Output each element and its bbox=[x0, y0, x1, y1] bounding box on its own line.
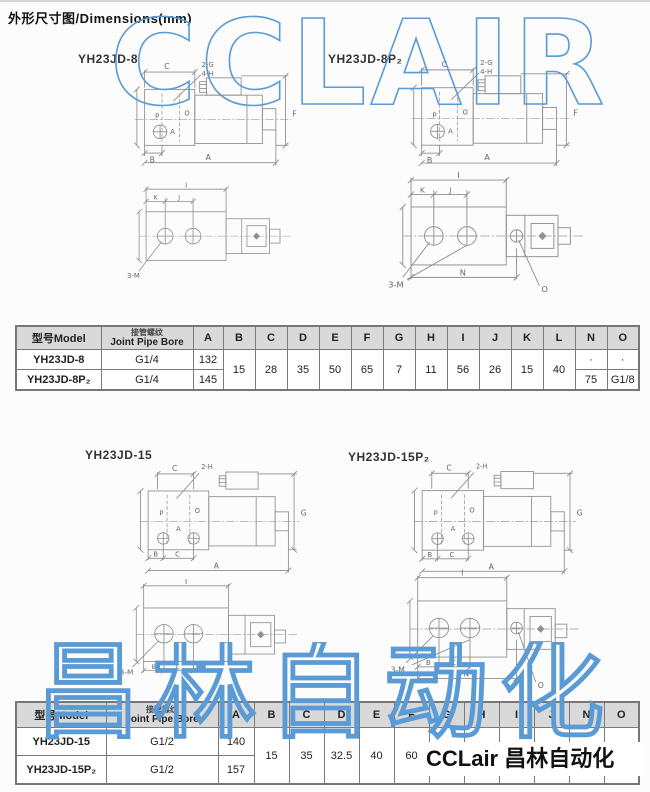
cell-bore: G1/4 bbox=[101, 350, 193, 370]
datasheet-page: 外形尺寸图/Dimensions(mm) YH23JD-8 YH23JD-8P₂… bbox=[0, 0, 650, 792]
dim-label-p: P bbox=[159, 510, 163, 518]
column-header: B bbox=[254, 702, 289, 728]
column-header-bore: 接管螺纹 Joint Pipe Bore bbox=[106, 702, 218, 728]
dim-label-2h: 2-H bbox=[476, 463, 488, 471]
dim-label-a: A bbox=[451, 525, 456, 533]
column-header: F bbox=[351, 326, 383, 350]
column-header: J bbox=[534, 702, 569, 728]
cell-f: 60 bbox=[394, 728, 429, 785]
dim-label-2g: 2-G bbox=[202, 61, 214, 69]
cell-g: 7 bbox=[383, 350, 415, 391]
dim-label-p: P bbox=[434, 510, 438, 518]
cell-model: YH23JD-15P₂ bbox=[16, 756, 106, 785]
column-header-model: 型号Model bbox=[16, 326, 101, 350]
dim-label-a-bottom: A bbox=[206, 153, 212, 162]
dim-label-g: G bbox=[577, 509, 583, 518]
cell-a: 145 bbox=[193, 370, 223, 391]
column-header-model: 型号Model bbox=[16, 702, 106, 728]
cell-n: · bbox=[575, 350, 607, 370]
dim-label-n: N bbox=[463, 669, 469, 678]
column-header: J bbox=[479, 326, 511, 350]
table-header-row: 型号Model 接管螺纹 Joint Pipe Bore A B C D E F… bbox=[16, 326, 639, 350]
dim-label-b: B bbox=[153, 550, 158, 558]
dim-label-o: O bbox=[541, 284, 548, 294]
dim-label-c: C bbox=[176, 663, 181, 671]
column-header: O bbox=[604, 702, 639, 728]
dim-label-a-bottom: A bbox=[214, 562, 220, 571]
cell-bore: G1/4 bbox=[101, 370, 193, 391]
dim-label-o: O bbox=[463, 108, 469, 116]
dim-label-g: G bbox=[301, 509, 307, 518]
cell-k: 15 bbox=[511, 350, 543, 391]
cell-bore: G1/2 bbox=[106, 728, 218, 756]
dim-label-c: C bbox=[446, 463, 451, 472]
bore-header-en: Joint Pipe Bore bbox=[107, 714, 218, 725]
column-header: L bbox=[543, 326, 575, 350]
column-header: A bbox=[218, 702, 254, 728]
dim-label-f: F bbox=[573, 108, 578, 117]
bottom-view-yh23jd-15: I 3-M B C bbox=[116, 576, 328, 686]
cell-e: 50 bbox=[319, 350, 351, 391]
dim-label-4h: 4-H bbox=[480, 68, 492, 76]
dim-label-b: B bbox=[150, 156, 155, 165]
cell-l: 40 bbox=[543, 350, 575, 391]
dim-label-o: O bbox=[184, 109, 189, 117]
column-header: F bbox=[394, 702, 429, 728]
bore-header-en: Joint Pipe Bore bbox=[102, 337, 193, 348]
cell-i: 56 bbox=[447, 350, 479, 391]
cell-a: 140 bbox=[218, 728, 254, 756]
dim-label-i: I bbox=[185, 181, 187, 189]
side-view-yh23jd-8p2: C 2-G 4-H P O A B A F bbox=[382, 54, 610, 172]
column-header: G bbox=[383, 326, 415, 350]
column-header: K bbox=[511, 326, 543, 350]
cclair-logo-text: CCLair 昌林自动化 bbox=[426, 742, 642, 776]
dim-label-b: B bbox=[428, 551, 433, 559]
column-header: O bbox=[607, 326, 639, 350]
cell-d: 35 bbox=[287, 350, 319, 391]
page-title: 外形尺寸图/Dimensions(mm) bbox=[8, 8, 192, 27]
cell-e: 40 bbox=[359, 728, 394, 785]
dim-label-3m: 3-M bbox=[391, 666, 405, 675]
cell-bore: G1/2 bbox=[106, 756, 218, 785]
dim-label-3m: 3-M bbox=[388, 280, 403, 290]
dim-label-f: F bbox=[292, 109, 296, 118]
dim-label-j: J bbox=[177, 195, 180, 202]
dim-label-c: C bbox=[442, 60, 448, 69]
column-header: H bbox=[415, 326, 447, 350]
cell-d: 32.5 bbox=[324, 728, 359, 785]
column-header: A bbox=[193, 326, 223, 350]
dim-label-a: A bbox=[448, 127, 453, 135]
dim-label-o: O bbox=[469, 507, 474, 515]
dim-label-k: K bbox=[154, 195, 159, 202]
cell-c: 35 bbox=[289, 728, 324, 785]
cell-n: 75 bbox=[575, 370, 607, 391]
column-header: D bbox=[287, 326, 319, 350]
dim-label-2g: 2-G bbox=[480, 59, 493, 67]
cell-h: 11 bbox=[415, 350, 447, 391]
side-view-yh23jd-8: C 2-G 4-H P O A B A F bbox=[106, 58, 328, 170]
cell-model: YH23JD-8 bbox=[16, 350, 101, 370]
column-header: E bbox=[359, 702, 394, 728]
dim-label-b: B bbox=[426, 659, 431, 667]
column-header: C bbox=[255, 326, 287, 350]
dimensions-table-yh23jd-8: 型号Model 接管螺纹 Joint Pipe Bore A B C D E F… bbox=[15, 325, 640, 391]
column-header: G bbox=[429, 702, 464, 728]
dim-label-a: A bbox=[176, 525, 181, 533]
dim-label-2h: 2-H bbox=[201, 463, 213, 471]
cell-f: 65 bbox=[351, 350, 383, 391]
side-view-yh23jd-15p2: C 2-H P O A B C A G bbox=[385, 458, 611, 578]
cell-b: 15 bbox=[254, 728, 289, 785]
dim-label-c: C bbox=[172, 464, 177, 473]
cell-model: YH23JD-8P₂ bbox=[16, 370, 101, 391]
side-view-yh23jd-15: C 2-H P O A B C A G bbox=[114, 458, 332, 578]
dim-label-c: C bbox=[164, 62, 169, 71]
dim-label-p: P bbox=[155, 112, 159, 120]
cell-b: 15 bbox=[223, 350, 255, 391]
column-header-bore: 接管螺纹 Joint Pipe Bore bbox=[101, 326, 193, 350]
cell-c: 28 bbox=[255, 350, 287, 391]
cell-model: YH23JD-15 bbox=[16, 728, 106, 756]
dim-label-4h: 4-H bbox=[202, 70, 214, 78]
column-header: E bbox=[319, 326, 351, 350]
cell-a: 132 bbox=[193, 350, 223, 370]
dim-label-c: C bbox=[451, 659, 456, 667]
dim-label-p: P bbox=[432, 111, 436, 119]
dim-label-i: I bbox=[457, 170, 459, 180]
cell-o: G1/8 bbox=[607, 370, 639, 391]
dim-label-c2: C bbox=[450, 551, 455, 559]
dim-label-i: I bbox=[461, 569, 463, 578]
dim-label-k: K bbox=[420, 186, 425, 195]
bottom-view-yh23jd-8: I K J 3-M bbox=[120, 176, 320, 298]
column-header: I bbox=[499, 702, 534, 728]
bottom-view-yh23jd-8p2: I K J 3-M N O bbox=[380, 168, 618, 306]
column-header: I bbox=[447, 326, 479, 350]
dim-label-c2: C bbox=[175, 550, 180, 558]
dim-label-3m: 3-M bbox=[127, 272, 140, 280]
dim-label-j: J bbox=[448, 186, 451, 195]
dim-label-o: O bbox=[195, 507, 200, 515]
column-header: N bbox=[575, 326, 607, 350]
bottom-view-yh23jd-15p2: I 3-M B C N O bbox=[380, 568, 620, 690]
column-header: C bbox=[289, 702, 324, 728]
column-header: H bbox=[464, 702, 499, 728]
table-header-row: 型号Model 接管螺纹 Joint Pipe Bore A B C D E F… bbox=[16, 702, 639, 728]
dim-label-a: A bbox=[170, 128, 175, 136]
column-header: D bbox=[324, 702, 359, 728]
dim-label-b: B bbox=[152, 663, 156, 671]
column-header: N bbox=[569, 702, 604, 728]
dim-label-n: N bbox=[460, 267, 466, 277]
table-row: YH23JD-8 G1/4 132 15 28 35 50 65 7 11 56… bbox=[16, 350, 639, 370]
cell-a: 157 bbox=[218, 756, 254, 785]
bore-header-cn: 接管螺纹 bbox=[107, 706, 218, 714]
cell-o: · bbox=[607, 350, 639, 370]
dim-label-o: O bbox=[538, 681, 544, 690]
dim-label-3m: 3-M bbox=[120, 667, 134, 676]
cell-j: 26 bbox=[479, 350, 511, 391]
column-header: B bbox=[223, 326, 255, 350]
bore-header-cn: 接管螺纹 bbox=[102, 329, 193, 337]
dim-label-a-bottom: A bbox=[484, 153, 490, 162]
dim-label-b: B bbox=[427, 156, 432, 165]
dim-label-i: I bbox=[185, 577, 187, 586]
